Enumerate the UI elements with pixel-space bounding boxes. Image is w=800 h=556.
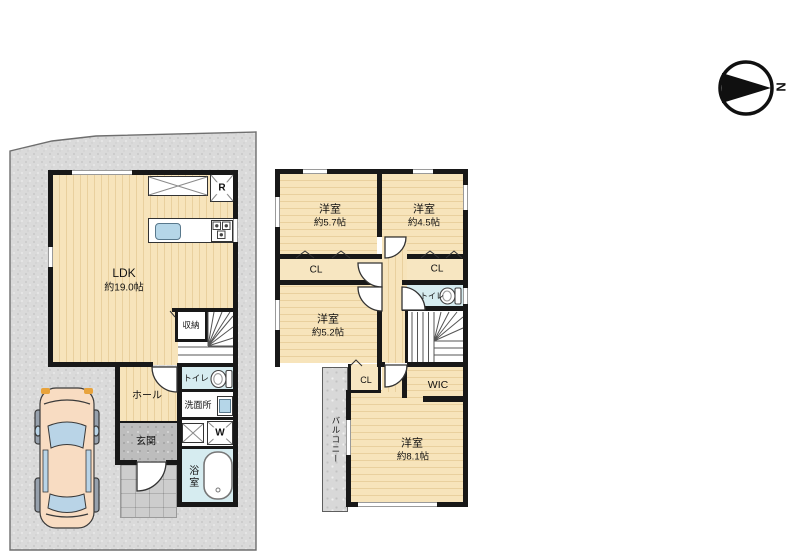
window-marker — [413, 169, 433, 174]
ldk-area-label: 約19.0帖 — [104, 282, 143, 294]
closet-a-label: CL — [310, 264, 323, 276]
closet-b-label: CL — [431, 263, 444, 275]
f2-wall-right — [463, 169, 468, 507]
bedroom-a-area: 約5.7帖 — [314, 219, 346, 230]
bedroom-c-label: 洋室 — [317, 314, 339, 327]
f1-wall-ldk-bottom — [48, 362, 153, 367]
window-marker — [303, 169, 327, 174]
f2-wall-clb-top — [407, 254, 468, 259]
storage-label: 収納 — [182, 321, 199, 331]
compass-north-label: N — [773, 82, 788, 91]
balcony-label: バルコニー — [330, 416, 340, 464]
hall-label: ホール — [132, 390, 162, 402]
wic-label: WIC — [428, 379, 448, 391]
f1-entrance-porch — [120, 464, 177, 518]
f2-wall-wic-bottom — [423, 396, 468, 402]
f2-landing — [352, 259, 382, 281]
f1-wall-toilet-b — [180, 389, 236, 392]
f1-wall-utility-b — [180, 446, 236, 449]
f2-wall-stairs-b2 — [407, 362, 468, 367]
window-marker — [346, 420, 351, 455]
f2-wall-wic-left — [402, 367, 407, 398]
f1-wall-mid — [177, 365, 182, 507]
window-marker — [358, 502, 437, 507]
f2-stairs-area — [407, 312, 463, 363]
f2-wall-toilet-bottom — [402, 306, 468, 311]
window-marker — [48, 247, 53, 267]
bedroom-c-area: 約5.2帖 — [312, 329, 344, 340]
washroom-label: 洗面所 — [184, 400, 211, 410]
f1-wall-bottom — [177, 502, 238, 507]
bathroom-label: 浴室 — [186, 465, 198, 489]
f1-wall-entrance-step — [118, 421, 177, 423]
f1-vanity-sink — [219, 399, 231, 413]
window-marker — [72, 170, 132, 175]
f2-wall-c-top — [275, 280, 382, 285]
f1-wall-entrance-l — [115, 460, 137, 465]
f1-shoe-cabinet — [182, 423, 204, 443]
window-marker — [463, 185, 468, 210]
f1-wall-storage-top — [172, 308, 234, 312]
f1-wall-hall-left — [115, 362, 120, 465]
f1-stove — [211, 220, 233, 242]
f2-wall-corridor-left — [377, 311, 382, 367]
f2-wall-ab — [377, 169, 382, 237]
f2-corridor — [382, 237, 407, 363]
f1-wall-stairs-b — [177, 363, 237, 367]
floor-plan-page: LDK 約19.0帖 収納 ホール トイレ 洗面所 玄関 W R 浴室 洋室 約… — [0, 0, 800, 556]
window-marker — [463, 288, 468, 304]
bedroom-b-label: 洋室 — [413, 204, 435, 217]
bedroom-d-label: 洋室 — [401, 438, 423, 451]
toilet2-label: トイレ — [420, 291, 444, 300]
bedroom-d-area: 約8.1帖 — [397, 453, 429, 464]
bedroom-a-label: 洋室 — [319, 204, 341, 217]
window-marker — [275, 197, 280, 227]
f2-wall-stairs-b1 — [377, 362, 385, 367]
f1-wall-left — [48, 170, 53, 367]
refrigerator-label: R — [216, 182, 227, 194]
ldk-label: LDK — [112, 267, 135, 281]
window-marker — [275, 300, 280, 330]
f2-wall-stairs-left — [405, 311, 408, 363]
washer-label: W — [213, 427, 226, 439]
window-marker — [233, 219, 238, 242]
bedroom-b-area: 約4.5帖 — [408, 219, 440, 230]
f2-wall-toilet-top — [402, 280, 468, 285]
toilet1-label: トイレ — [183, 374, 209, 384]
f1-wall-wash-b — [180, 417, 236, 420]
entrance-label: 玄関 — [136, 436, 156, 448]
closet-c-label: CL — [360, 375, 372, 385]
f2-wall-cla-top — [275, 254, 382, 259]
f1-closet-box — [148, 176, 208, 196]
f1-kitchen-sink — [155, 223, 181, 240]
